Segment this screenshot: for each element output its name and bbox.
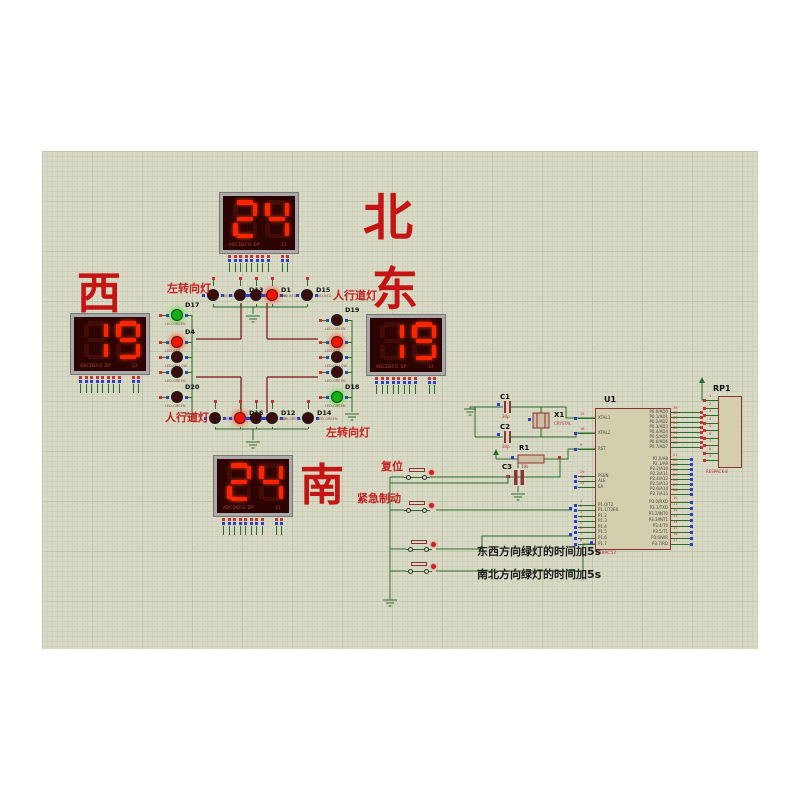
mcu-pin-square bbox=[690, 468, 693, 471]
display-pin-wire bbox=[86, 384, 87, 393]
led-pin-square bbox=[159, 314, 162, 317]
segment bbox=[227, 486, 232, 499]
led-stub bbox=[186, 372, 192, 373]
display-pin-square bbox=[132, 380, 135, 383]
ew-green-plus-5s-button[interactable] bbox=[406, 540, 436, 554]
display-pin-wire bbox=[268, 263, 269, 272]
rp1-pin-square bbox=[703, 399, 706, 402]
mcu-pin-name: P3.7/RD bbox=[636, 542, 668, 546]
mcu-pin-number: 18 bbox=[580, 428, 584, 432]
segment bbox=[120, 355, 136, 360]
mcu-pin-square bbox=[690, 525, 693, 528]
segment bbox=[384, 322, 400, 327]
mcu-pin-square bbox=[574, 480, 577, 483]
wire-layer bbox=[0, 0, 800, 800]
led-east-signals-1[interactable] bbox=[331, 336, 343, 348]
display-pin-square bbox=[375, 381, 378, 384]
mcu-pin-name: P1.3 bbox=[598, 519, 607, 523]
mcu-pin-name: XTAL2 bbox=[598, 431, 610, 435]
led-stub bbox=[322, 342, 328, 343]
display-pin-square bbox=[250, 518, 253, 521]
display-pin-square bbox=[433, 377, 436, 380]
rp1-pin-number: 1 bbox=[709, 395, 711, 399]
rp1-ref: RP1 bbox=[713, 384, 731, 393]
segment bbox=[416, 322, 432, 327]
display-pin-square bbox=[408, 377, 411, 380]
button-cap bbox=[411, 562, 427, 566]
mcu-pin-square bbox=[690, 531, 693, 534]
segment bbox=[84, 344, 89, 357]
capacitor-c2[interactable] bbox=[505, 431, 510, 443]
display-pin-wire bbox=[256, 526, 257, 535]
led-pin-square bbox=[306, 277, 309, 280]
led-south-signals-0[interactable] bbox=[209, 412, 221, 424]
rp1-pin-stub bbox=[706, 423, 718, 424]
mcu-pin-square bbox=[574, 543, 577, 546]
display-pin-square bbox=[381, 377, 384, 380]
display-pin-square bbox=[112, 380, 115, 383]
led-D19[interactable] bbox=[331, 314, 343, 326]
mcu-pin-number: 10 bbox=[673, 497, 677, 501]
mcu-pin-square bbox=[574, 526, 577, 529]
display-pin-square bbox=[267, 255, 270, 258]
display-pin-square bbox=[234, 255, 237, 258]
led-handle bbox=[261, 417, 264, 420]
display-pin-square bbox=[118, 376, 121, 379]
display-pin-square bbox=[228, 255, 231, 258]
segment bbox=[400, 325, 405, 338]
rp1-pin-stub bbox=[706, 415, 718, 416]
direction-label-east: 东 bbox=[372, 266, 418, 312]
mcu-pin-name: P0.7/AD7 bbox=[636, 445, 668, 449]
mcu-pin-number: 11 bbox=[673, 503, 677, 507]
mcu-pin-square bbox=[574, 531, 577, 534]
mcu-pin-square bbox=[690, 543, 693, 546]
led-stub bbox=[215, 403, 216, 409]
button-actuator-dot bbox=[431, 564, 436, 569]
mcu-pin-number: 16 bbox=[673, 533, 677, 537]
display-pin-wire bbox=[387, 385, 388, 394]
mcu-pin-number: 24 bbox=[673, 469, 677, 473]
segment bbox=[380, 325, 385, 338]
rp1-pin-square bbox=[703, 429, 706, 432]
display-pin-square bbox=[222, 522, 225, 525]
led-type-label: LED-GREEN bbox=[325, 404, 345, 408]
mcu-pin-stub bbox=[671, 494, 690, 495]
mcu-pin-number: 29 bbox=[580, 471, 584, 475]
mcu-pin-square bbox=[690, 473, 693, 476]
led-stub bbox=[308, 403, 309, 409]
display-pin-square bbox=[397, 377, 400, 380]
led-stub bbox=[307, 304, 308, 307]
led-stub bbox=[256, 304, 257, 307]
seven-seg-display-west[interactable]: ABCDEFG DP12 bbox=[71, 314, 149, 374]
mcu-pin-number: 36 bbox=[673, 422, 677, 426]
reset-button[interactable] bbox=[404, 468, 434, 482]
segment bbox=[432, 325, 437, 338]
display-pin-square bbox=[397, 381, 400, 384]
led-stub bbox=[213, 280, 214, 286]
display-pin-square bbox=[281, 259, 284, 262]
led-designator: D18 bbox=[345, 383, 359, 391]
segment bbox=[247, 486, 252, 499]
mcu-pin-number: 35 bbox=[673, 427, 677, 431]
segment bbox=[237, 217, 253, 222]
mcu-pin-name: P2.7/A15 bbox=[636, 492, 668, 496]
mcu-pin-square bbox=[690, 478, 693, 481]
led-D14[interactable] bbox=[302, 412, 314, 424]
segment bbox=[400, 345, 405, 358]
segment bbox=[237, 234, 253, 239]
mcu-pin-square bbox=[690, 483, 693, 486]
segment bbox=[416, 339, 432, 344]
rp1-pin-square bbox=[703, 452, 706, 455]
display-strip-right: 12 bbox=[281, 242, 287, 247]
button-actuator-dot bbox=[429, 503, 434, 508]
x1-val: CRYSTAL bbox=[554, 421, 571, 426]
led-handle bbox=[261, 294, 264, 297]
mcu-pin-number: 28 bbox=[673, 489, 677, 493]
led-designator: D20 bbox=[185, 383, 199, 391]
seven-seg-display-south[interactable]: ABCDEFG DP12 bbox=[214, 456, 292, 516]
c3-ref: C3 bbox=[502, 463, 512, 471]
button-terminal bbox=[424, 547, 429, 552]
led-stub bbox=[240, 403, 241, 409]
display-strip-left: ABCDEFG DP bbox=[229, 242, 260, 247]
mcu-pin-stub bbox=[578, 544, 595, 545]
display-pin-square bbox=[250, 522, 253, 525]
display-pin-wire bbox=[276, 526, 277, 535]
mcu-pin-square bbox=[690, 513, 693, 516]
display-pin-wire bbox=[113, 384, 114, 393]
led-D20[interactable] bbox=[171, 391, 183, 403]
mcu-pin-number: 22 bbox=[673, 459, 677, 463]
display-pin-wire bbox=[398, 385, 399, 394]
schematic-label: 人行道灯 bbox=[333, 290, 377, 302]
display-pin-square bbox=[233, 522, 236, 525]
display-pin-square bbox=[280, 522, 283, 525]
button-cap bbox=[411, 540, 427, 544]
segment bbox=[412, 325, 417, 338]
display-pin-square bbox=[239, 518, 242, 521]
mcu-pin-number: 38 bbox=[673, 412, 677, 416]
crystal-x1[interactable] bbox=[533, 413, 549, 428]
schematic-label: 人行道灯 bbox=[165, 412, 209, 424]
respack-body[interactable] bbox=[718, 396, 742, 468]
led-handle bbox=[297, 417, 300, 420]
led-stub bbox=[272, 403, 273, 409]
display-pin-square bbox=[286, 255, 289, 258]
display-pin-square bbox=[107, 376, 110, 379]
mcu-pin-number: 30 bbox=[580, 476, 584, 480]
mcu-pin-number: 17 bbox=[673, 539, 677, 543]
segment bbox=[269, 200, 285, 205]
led-stub bbox=[346, 397, 352, 398]
button-terminal bbox=[422, 475, 427, 480]
display-pin-wire bbox=[245, 526, 246, 535]
display-pin-square bbox=[261, 259, 264, 262]
led-stub bbox=[256, 427, 257, 429]
display-pin-square bbox=[137, 380, 140, 383]
segment bbox=[88, 338, 104, 343]
display-pin-wire bbox=[229, 526, 230, 535]
button-actuator-dot bbox=[431, 542, 436, 547]
led-pin-square bbox=[319, 319, 322, 322]
segment bbox=[227, 466, 232, 479]
led-designator: D4 bbox=[185, 328, 195, 336]
c1-val: 30p bbox=[502, 414, 510, 419]
led-handle bbox=[245, 294, 248, 297]
display-pin-square bbox=[118, 380, 121, 383]
mcu-pin-square bbox=[690, 463, 693, 466]
c2-val: 30p bbox=[502, 444, 510, 449]
display-pin-wire bbox=[240, 526, 241, 535]
rp1-pin-number: 9 bbox=[709, 455, 711, 459]
segment bbox=[259, 486, 264, 499]
mcu-pin-name: P3.3/INT1 bbox=[636, 518, 668, 522]
segment bbox=[384, 356, 400, 361]
led-designator: D14 bbox=[317, 409, 331, 417]
mcu-pin-square bbox=[690, 493, 693, 496]
led-D1[interactable] bbox=[266, 289, 278, 301]
mcu-pin-name: P3.1/TXD bbox=[636, 506, 668, 510]
display-pin-wire bbox=[138, 384, 139, 393]
display-pin-square bbox=[255, 518, 258, 521]
led-stub bbox=[162, 357, 168, 358]
segment bbox=[237, 200, 253, 205]
led-designator: D15 bbox=[316, 286, 330, 294]
segment bbox=[116, 344, 121, 357]
display-pin-square bbox=[381, 381, 384, 384]
led-pin-square bbox=[159, 396, 162, 399]
led-designator: D1 bbox=[281, 286, 291, 294]
emergency-brake-button[interactable] bbox=[404, 501, 434, 515]
x1-ref: X1 bbox=[554, 411, 564, 419]
mcu-pin-number: 33 bbox=[673, 437, 677, 441]
mcu-pin-number: 9 bbox=[580, 444, 582, 448]
mcu-pin-square bbox=[690, 519, 693, 522]
led-type-label: LED-RED bbox=[316, 294, 331, 298]
display-pin-square bbox=[414, 381, 417, 384]
led-D4[interactable] bbox=[171, 336, 183, 348]
mcu-pin-stub bbox=[578, 418, 595, 419]
mcu-pin-name: P3.2/INT0 bbox=[636, 512, 668, 516]
seven-seg-display-east[interactable]: ABCDEFG DP12 bbox=[367, 315, 445, 375]
rp1-pin-square bbox=[703, 422, 706, 425]
schematic-canvas[interactable]: U1 AT89C52 RP1 RESPACK-8 C1 30p C2 30p X… bbox=[0, 0, 800, 800]
led-handle bbox=[296, 294, 299, 297]
segment bbox=[231, 497, 247, 502]
mcu-pin-square bbox=[574, 515, 577, 518]
display-pin-square bbox=[107, 380, 110, 383]
led-pin-square bbox=[271, 400, 274, 403]
display-pin-wire bbox=[240, 263, 241, 272]
rp1-pin-number: 5 bbox=[709, 425, 711, 429]
led-stub bbox=[213, 304, 214, 307]
display-pin-wire bbox=[429, 385, 430, 394]
rp1-pin-number: 8 bbox=[709, 448, 711, 452]
display-pin-wire bbox=[235, 263, 236, 272]
display-pin-square bbox=[245, 259, 248, 262]
led-pin-square bbox=[255, 400, 258, 403]
rp1-pin-stub bbox=[706, 438, 718, 439]
display-pin-wire bbox=[234, 526, 235, 535]
mcu-pin-square bbox=[690, 537, 693, 540]
mcu-pin-name: RST bbox=[598, 447, 606, 451]
display-pin-square bbox=[403, 377, 406, 380]
segment bbox=[285, 203, 290, 216]
display-pin-square bbox=[250, 255, 253, 258]
rp1-part: RESPACK-8 bbox=[706, 469, 728, 474]
display-pin-square bbox=[428, 377, 431, 380]
display-pin-wire bbox=[91, 384, 92, 393]
rp1-pin-number: 6 bbox=[709, 433, 711, 437]
direction-label-north: 北 bbox=[363, 193, 413, 243]
mcu-pin-number: 34 bbox=[673, 432, 677, 436]
led-stub bbox=[272, 280, 273, 286]
mcu-pin-number: 3 bbox=[580, 511, 582, 515]
display-pin-square bbox=[375, 377, 378, 380]
display-pin-wire bbox=[133, 384, 134, 393]
display-pin-square bbox=[267, 259, 270, 262]
display-pin-square bbox=[79, 376, 82, 379]
led-east-signals-2[interactable] bbox=[331, 351, 343, 363]
led-stub bbox=[346, 372, 352, 373]
display-pin-square bbox=[386, 381, 389, 384]
button-terminal bbox=[406, 475, 411, 480]
mcu-pin-stub bbox=[578, 449, 595, 450]
led-stub bbox=[186, 315, 192, 316]
mcu-pin-square bbox=[574, 509, 577, 512]
display-pin-square bbox=[433, 381, 436, 384]
seven-seg-display-north[interactable]: ABCDEFG DP12 bbox=[220, 193, 298, 253]
led-pin-square bbox=[214, 400, 217, 403]
capacitor-c1[interactable] bbox=[505, 401, 510, 413]
mcu-pin-square bbox=[690, 501, 693, 504]
mcu-pin-number: 13 bbox=[673, 515, 677, 519]
rp1-pin-square bbox=[703, 414, 706, 417]
led-D12[interactable] bbox=[266, 412, 278, 424]
rp1-pin-stub bbox=[706, 460, 718, 461]
rp1-pin-number: 7 bbox=[709, 440, 711, 444]
display-pin-square bbox=[275, 522, 278, 525]
display-pin-square bbox=[250, 259, 253, 262]
mcu-pin-name: P1.5 bbox=[598, 530, 607, 534]
display-pin-square bbox=[408, 381, 411, 384]
display-pin-wire bbox=[80, 384, 81, 393]
segment bbox=[259, 466, 264, 479]
led-pin-square bbox=[239, 277, 242, 280]
led-pin-square bbox=[159, 341, 162, 344]
segment bbox=[84, 324, 89, 337]
display-pin-wire bbox=[108, 384, 109, 393]
direction-label-west: 西 bbox=[77, 272, 121, 316]
display-pin-square bbox=[90, 380, 93, 383]
display-pin-square bbox=[234, 259, 237, 262]
mcu-pin-square bbox=[574, 448, 577, 451]
direction-label-south: 南 bbox=[300, 464, 344, 508]
segment bbox=[88, 355, 104, 360]
led-pin-square bbox=[307, 400, 310, 403]
led-stub bbox=[272, 427, 273, 429]
led-west-signals-3[interactable] bbox=[171, 366, 183, 378]
led-stub bbox=[240, 304, 241, 307]
r1-val: 10k bbox=[521, 464, 528, 469]
mcu-pin-stub bbox=[578, 487, 595, 488]
resistor-r1[interactable] bbox=[518, 455, 544, 463]
segment bbox=[104, 324, 109, 337]
mcu-pin-number: 27 bbox=[673, 484, 677, 488]
mcu-pin-name: P1.6 bbox=[598, 536, 607, 540]
display-pin-square bbox=[222, 518, 225, 521]
segment bbox=[416, 356, 432, 361]
display-pin-square bbox=[281, 255, 284, 258]
segment bbox=[263, 480, 279, 485]
mcu-pin-number: 7 bbox=[580, 533, 582, 537]
led-D15[interactable] bbox=[301, 289, 313, 301]
led-type-label: LED-GREEN bbox=[325, 327, 345, 331]
display-pin-square bbox=[392, 377, 395, 380]
c1-ref: C1 bbox=[500, 393, 510, 401]
ns-green-plus-5s-button[interactable] bbox=[406, 562, 436, 576]
led-west-signals-2[interactable] bbox=[171, 351, 183, 363]
led-stub bbox=[162, 315, 168, 316]
led-designator: D17 bbox=[185, 301, 199, 309]
r1-ref: R1 bbox=[519, 444, 529, 452]
segment bbox=[285, 223, 290, 236]
segment bbox=[104, 344, 109, 357]
mcu-pin-number: 15 bbox=[673, 527, 677, 531]
rp1-pin-square bbox=[703, 459, 706, 462]
button-terminal bbox=[408, 569, 413, 574]
display-pin-wire bbox=[262, 526, 263, 535]
mcu-pin-number: 39 bbox=[673, 407, 677, 411]
button-cap bbox=[409, 468, 425, 472]
display-pin-wire bbox=[223, 526, 224, 535]
led-stub bbox=[322, 357, 328, 358]
display-strip-left: ABCDEFG DP bbox=[223, 505, 254, 510]
display-pin-square bbox=[85, 376, 88, 379]
mcu-pin-number: 23 bbox=[673, 464, 677, 468]
schematic-label: 东西方向绿灯的时间加5s bbox=[477, 546, 601, 558]
display-pin-wire bbox=[102, 384, 103, 393]
led-stub bbox=[162, 342, 168, 343]
mcu-pin-number: 1 bbox=[580, 500, 582, 504]
led-east-signals-3[interactable] bbox=[331, 366, 343, 378]
mcu-pin-name: P1.1/T2EX bbox=[598, 508, 618, 512]
display-pin-square bbox=[79, 380, 82, 383]
display-pin-square bbox=[403, 381, 406, 384]
mcu-pin-number: 32 bbox=[673, 442, 677, 446]
display-pin-square bbox=[101, 380, 104, 383]
led-D18[interactable] bbox=[331, 391, 343, 403]
led-stub bbox=[322, 397, 328, 398]
segment bbox=[120, 338, 136, 343]
led-stub bbox=[322, 372, 328, 373]
led-stub bbox=[186, 342, 192, 343]
mcu-pin-square bbox=[574, 520, 577, 523]
mcu-pin-stub bbox=[671, 447, 700, 448]
display-pin-square bbox=[96, 376, 99, 379]
display-pin-wire bbox=[434, 385, 435, 394]
led-handle bbox=[229, 294, 232, 297]
segment bbox=[265, 223, 270, 236]
rp1-pin-stub bbox=[706, 400, 718, 401]
led-D17[interactable] bbox=[171, 309, 183, 321]
display-pin-square bbox=[244, 522, 247, 525]
display-pin-wire bbox=[404, 385, 405, 394]
led-handle bbox=[245, 417, 248, 420]
